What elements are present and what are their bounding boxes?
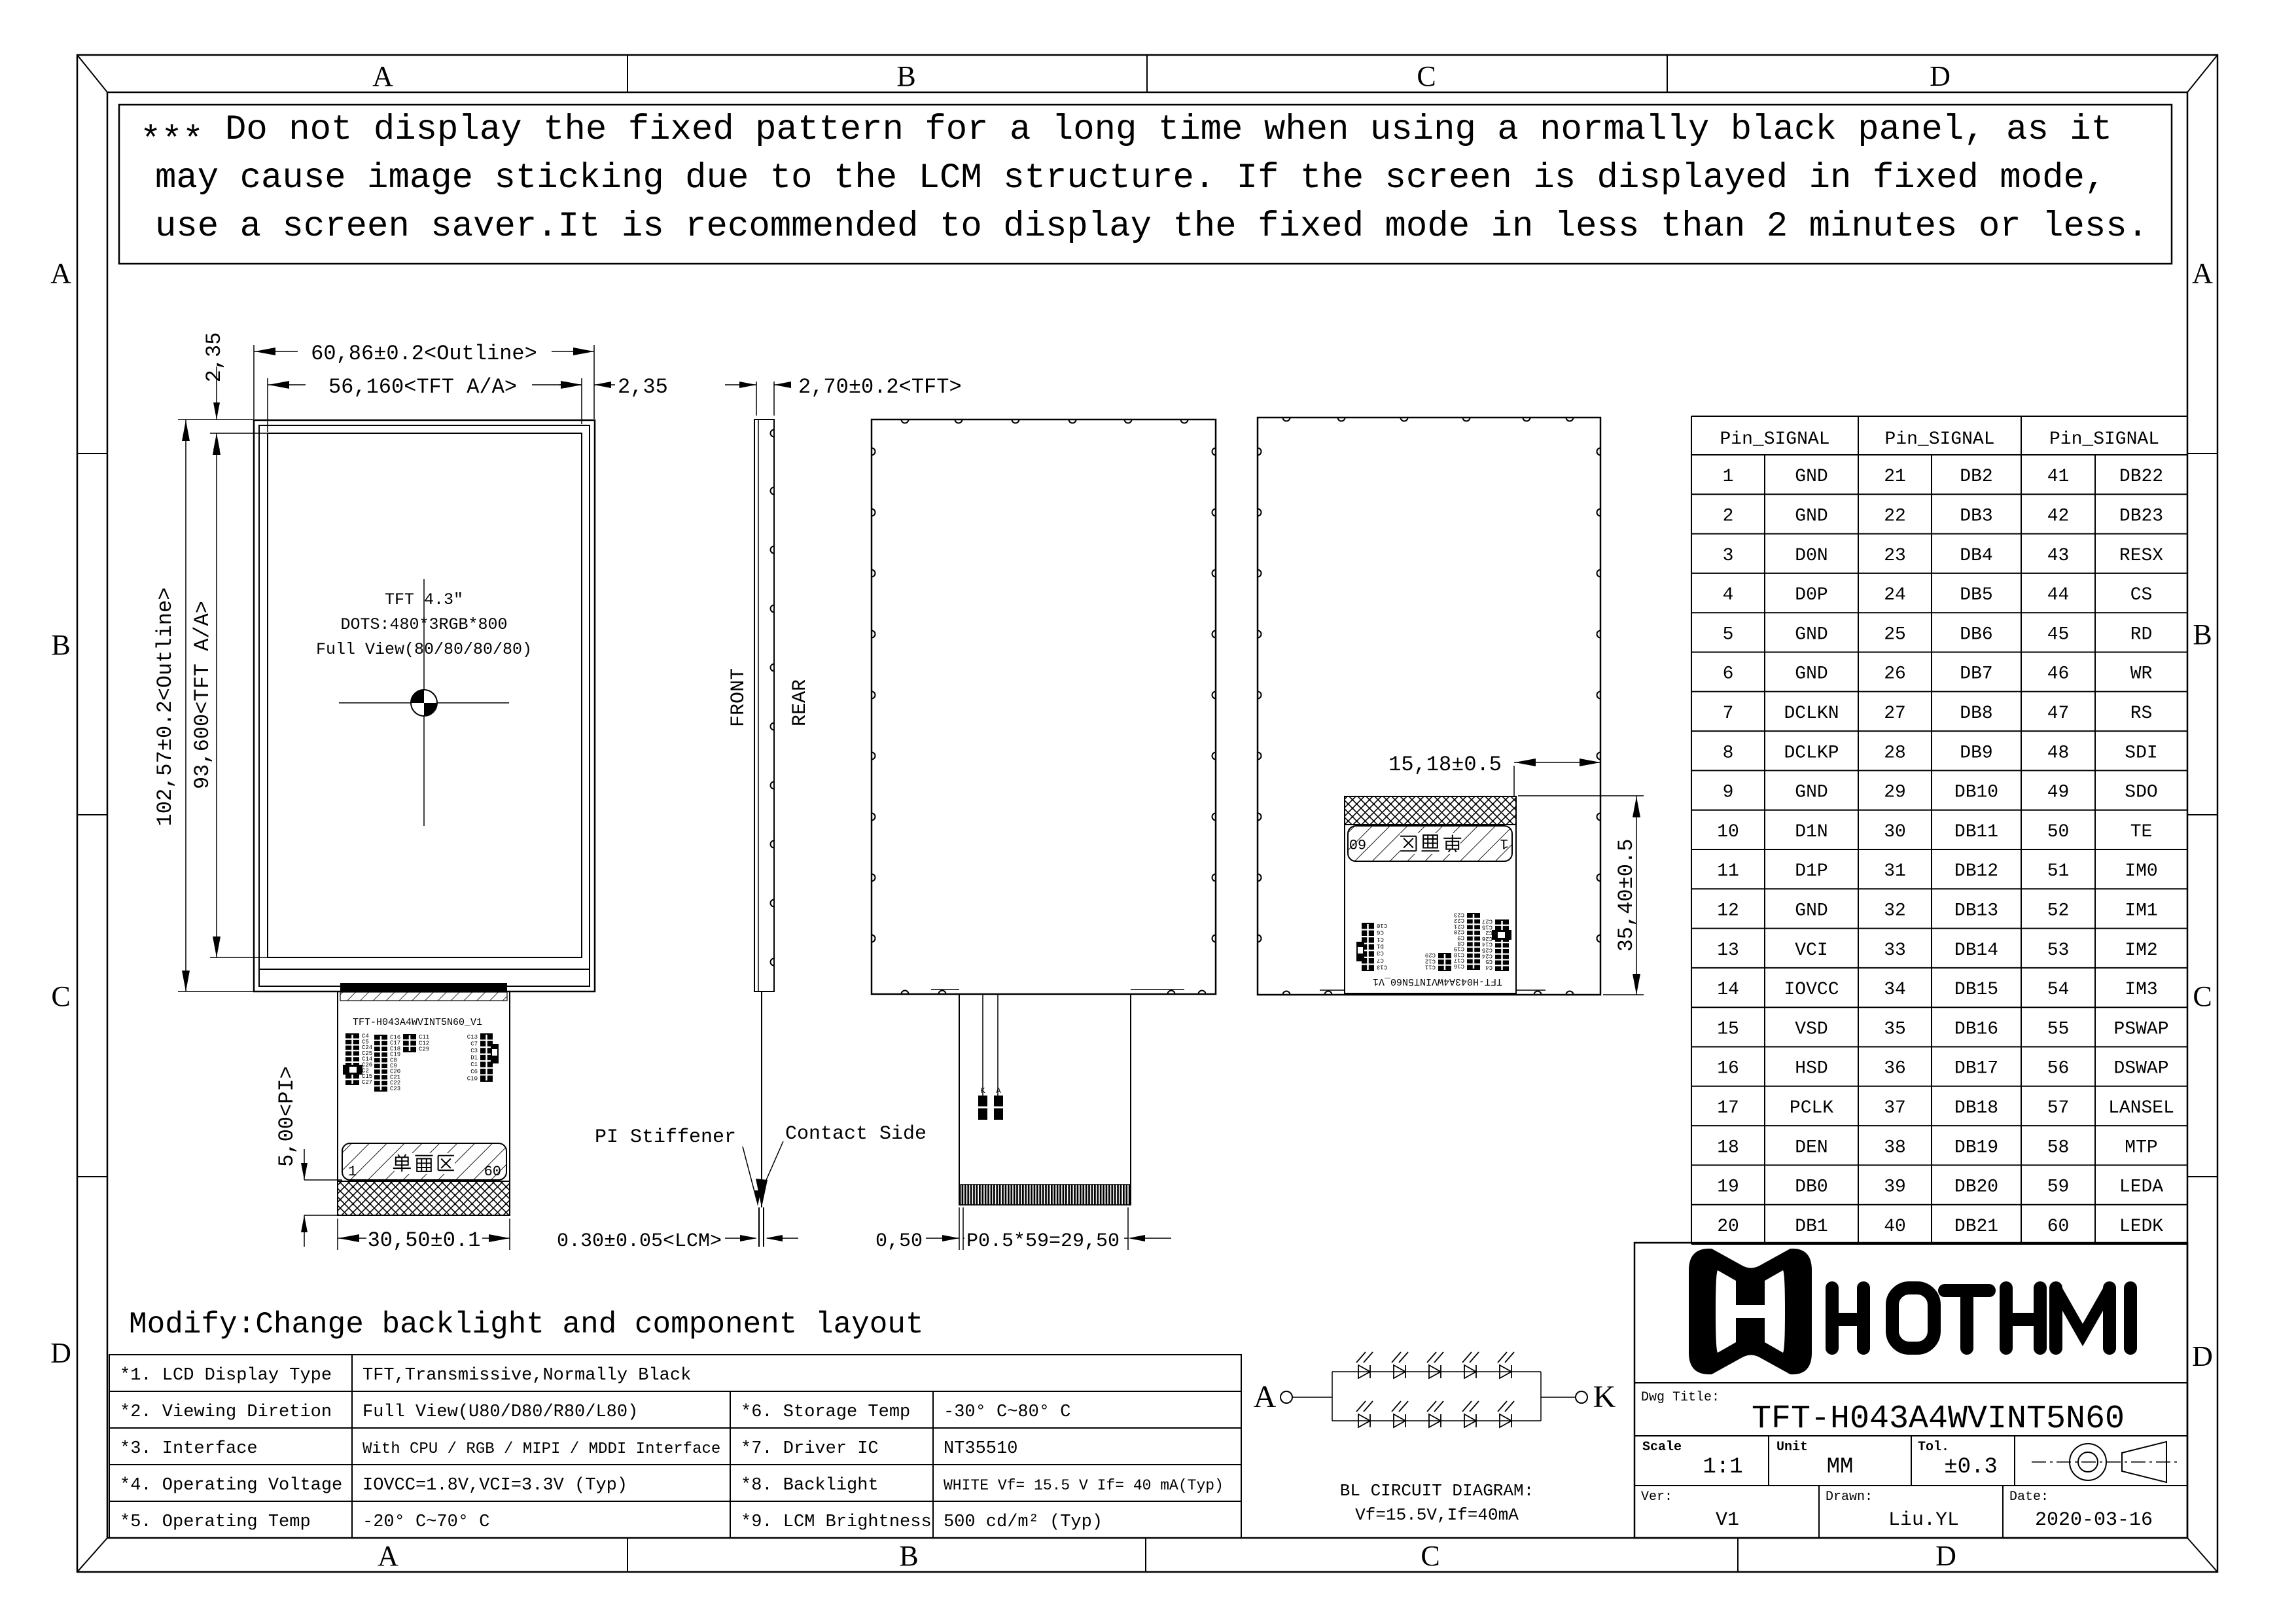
svg-text:Modify:Change backlight and co: Modify:Change backlight and component la… <box>129 1308 924 1342</box>
svg-text:D1P: D1P <box>1795 861 1828 882</box>
svg-text:39: 39 <box>1884 1177 1906 1198</box>
svg-text:C7: C7 <box>1377 957 1384 963</box>
svg-text:Pin_SIGNAL: Pin_SIGNAL <box>2049 429 2159 450</box>
svg-text:P0.5*59=29,50: P0.5*59=29,50 <box>966 1230 1120 1253</box>
svg-text:18: 18 <box>1717 1137 1739 1158</box>
svg-text:44: 44 <box>2047 585 2070 605</box>
svg-text:23: 23 <box>1884 546 1906 566</box>
svg-text:DB23: DB23 <box>2119 506 2163 526</box>
svg-text:A: A <box>996 1086 1001 1096</box>
svg-text:IM3: IM3 <box>2125 980 2157 1000</box>
svg-text:TFT-H043A4WVINT5N60_V1: TFT-H043A4WVINT5N60_V1 <box>1373 976 1502 987</box>
svg-text:DB10: DB10 <box>1954 783 1998 803</box>
svg-text:DEN: DEN <box>1795 1137 1828 1158</box>
svg-text:26: 26 <box>1884 664 1906 685</box>
svg-text:BL CIRCUIT DIAGRAM:: BL CIRCUIT DIAGRAM: <box>1340 1481 1534 1501</box>
svg-text:16: 16 <box>1717 1059 1739 1079</box>
svg-text:DB0: DB0 <box>1795 1177 1828 1198</box>
svg-text:1: 1 <box>348 1164 357 1180</box>
svg-text:C1: C1 <box>470 1061 478 1068</box>
svg-text:19: 19 <box>1717 1177 1739 1198</box>
svg-text:DB2: DB2 <box>1960 467 1992 487</box>
svg-text:VSD: VSD <box>1795 1019 1828 1039</box>
svg-text:49: 49 <box>2047 783 2070 803</box>
svg-text:DB7: DB7 <box>1960 664 1992 685</box>
svg-text:B: B <box>2193 618 2212 651</box>
svg-text:B: B <box>899 1540 918 1572</box>
svg-text:LEDA: LEDA <box>2119 1177 2163 1198</box>
svg-text:12: 12 <box>1717 901 1739 921</box>
svg-text:TFT-H043A4WVINT5N60_V1: TFT-H043A4WVINT5N60_V1 <box>353 1017 482 1028</box>
svg-text:28: 28 <box>1884 743 1906 763</box>
svg-text:56: 56 <box>2047 1059 2070 1079</box>
svg-text:*8. Backlight: *8. Backlight <box>741 1476 879 1495</box>
svg-text:15: 15 <box>1717 1019 1739 1039</box>
svg-text:Unit: Unit <box>1776 1440 1808 1455</box>
svg-text:Ver:: Ver: <box>1641 1489 1672 1505</box>
svg-text:DB17: DB17 <box>1954 1059 1998 1079</box>
svg-text:DB3: DB3 <box>1960 506 1992 526</box>
svg-text:A: A <box>50 257 71 289</box>
svg-text:DB19: DB19 <box>1954 1137 1998 1158</box>
svg-text:21: 21 <box>1884 467 1906 487</box>
svg-text:IM0: IM0 <box>2125 861 2157 882</box>
svg-text:Liu.YL: Liu.YL <box>1888 1509 1959 1531</box>
svg-text:6: 6 <box>1723 664 1734 685</box>
svg-text:B: B <box>896 60 915 92</box>
svg-text:D1: D1 <box>470 1055 478 1061</box>
svg-text:Full View(U80/D80/R80/L80): Full View(U80/D80/R80/L80) <box>362 1402 638 1422</box>
svg-text:C: C <box>2193 980 2212 1012</box>
svg-text:WR: WR <box>2130 664 2153 685</box>
svg-text:IOVCC=1.8V,VCI=3.3V (Typ): IOVCC=1.8V,VCI=3.3V (Typ) <box>362 1476 627 1495</box>
svg-text:Tol.: Tol. <box>1918 1440 1949 1455</box>
svg-text:RS: RS <box>2130 704 2153 724</box>
svg-text:Drawn:: Drawn: <box>1826 1489 1873 1505</box>
svg-text:With CPU / RGB / MIPI / MDDI I: With CPU / RGB / MIPI / MDDI Interface <box>362 1440 720 1458</box>
svg-text:GND: GND <box>1795 624 1828 645</box>
svg-text:C27: C27 <box>362 1079 372 1086</box>
svg-text:PSWAP: PSWAP <box>2113 1019 2168 1039</box>
svg-text:DB12: DB12 <box>1954 861 1998 882</box>
svg-text:*4. Operating Voltage: *4. Operating Voltage <box>120 1476 342 1495</box>
svg-text:±0.3: ±0.3 <box>1944 1455 1998 1480</box>
svg-text:29: 29 <box>1884 783 1906 803</box>
svg-text:C: C <box>1421 1540 1439 1572</box>
svg-text:4: 4 <box>1723 585 1734 605</box>
svg-text:*6. Storage Temp: *6. Storage Temp <box>741 1402 910 1422</box>
svg-text:DB6: DB6 <box>1960 624 1992 645</box>
svg-text:59: 59 <box>2047 1177 2070 1198</box>
svg-text:MTP: MTP <box>2125 1137 2157 1158</box>
svg-text:GND: GND <box>1795 664 1828 685</box>
svg-text:30,50±0.1: 30,50±0.1 <box>368 1228 481 1253</box>
svg-text:Pin_SIGNAL: Pin_SIGNAL <box>1884 429 1994 450</box>
svg-text:DB1: DB1 <box>1795 1217 1828 1237</box>
svg-text:TFT-H043A4WVINT5N60: TFT-H043A4WVINT5N60 <box>1752 1400 2125 1438</box>
svg-text:30: 30 <box>1884 822 1906 842</box>
svg-text:GND: GND <box>1795 467 1828 487</box>
svg-text:2,70±0.2<TFT>: 2,70±0.2<TFT> <box>798 375 962 399</box>
svg-text:93,600<TFT A/A>: 93,600<TFT A/A> <box>190 601 215 789</box>
svg-text:LEDK: LEDK <box>2119 1217 2163 1237</box>
svg-text:58: 58 <box>2047 1137 2070 1158</box>
svg-text:17: 17 <box>1717 1098 1739 1118</box>
svg-text:may cause image sticking due t: may cause image sticking due to the LCM … <box>155 158 2106 198</box>
svg-text:DB15: DB15 <box>1954 980 1998 1000</box>
svg-text:D1N: D1N <box>1795 822 1828 842</box>
svg-text:500 cd/m² (Typ): 500 cd/m² (Typ) <box>944 1512 1103 1532</box>
svg-text:Pin_SIGNAL: Pin_SIGNAL <box>1720 429 1829 450</box>
svg-text:Dwg Title:: Dwg Title: <box>1641 1390 1720 1405</box>
svg-text:5: 5 <box>1723 624 1734 645</box>
svg-text:DCLKN: DCLKN <box>1784 704 1839 724</box>
svg-text:D0N: D0N <box>1795 546 1828 566</box>
svg-text:1:1: 1:1 <box>1703 1455 1742 1480</box>
svg-text:GND: GND <box>1795 783 1828 803</box>
svg-text:45: 45 <box>2047 624 2070 645</box>
svg-text:C27: C27 <box>1482 918 1492 925</box>
svg-text:11: 11 <box>1717 861 1739 882</box>
svg-text:A: A <box>372 60 393 92</box>
svg-text:41: 41 <box>2047 467 2070 487</box>
svg-text:10: 10 <box>1717 822 1739 842</box>
svg-text:D: D <box>50 1337 71 1369</box>
svg-text:DB16: DB16 <box>1954 1019 1998 1039</box>
svg-text:REAR: REAR <box>789 679 811 726</box>
svg-text:IOVCC: IOVCC <box>1784 980 1839 1000</box>
svg-text:K: K <box>980 1086 985 1096</box>
svg-text:32: 32 <box>1884 901 1906 921</box>
svg-text:NT35510: NT35510 <box>944 1439 1017 1459</box>
svg-text:use a screen saver.It is recom: use a screen saver.It is recommended to … <box>155 207 2148 247</box>
svg-text:24: 24 <box>1884 585 1906 605</box>
svg-text:PCLK: PCLK <box>1790 1098 1833 1118</box>
svg-text:C: C <box>51 980 70 1012</box>
svg-text:2,35: 2,35 <box>618 375 668 399</box>
svg-text:*9. LCM Brightness: *9. LCM Brightness <box>741 1512 932 1532</box>
svg-text:B: B <box>51 629 70 661</box>
svg-text:FRONT: FRONT <box>728 668 750 727</box>
svg-text:60: 60 <box>2047 1217 2070 1237</box>
svg-text:2: 2 <box>1723 506 1734 526</box>
svg-text:C: C <box>1417 60 1436 92</box>
svg-text:52: 52 <box>2047 901 2070 921</box>
svg-text:DB5: DB5 <box>1960 585 1992 605</box>
svg-text:RESX: RESX <box>2119 546 2163 566</box>
svg-text:1: 1 <box>1500 835 1508 851</box>
svg-text:A: A <box>1254 1380 1277 1414</box>
svg-text:SDO: SDO <box>2125 783 2157 803</box>
svg-text:CS: CS <box>2130 585 2153 605</box>
svg-text:Vf=15.5V,If=40mA: Vf=15.5V,If=40mA <box>1355 1505 1519 1525</box>
svg-text:25: 25 <box>1884 624 1906 645</box>
svg-text:*3. Interface: *3. Interface <box>120 1439 258 1459</box>
svg-text:C3: C3 <box>470 1048 478 1054</box>
svg-text:***: *** <box>140 121 203 161</box>
svg-text:C10: C10 <box>467 1075 478 1082</box>
svg-text:C10: C10 <box>1377 922 1387 929</box>
svg-text:Date:: Date: <box>2009 1489 2049 1505</box>
svg-text:3: 3 <box>1723 546 1734 566</box>
svg-text:A: A <box>2192 257 2213 289</box>
svg-text:LANSEL: LANSEL <box>2108 1098 2174 1118</box>
svg-text:D1: D1 <box>1377 943 1384 950</box>
svg-text:20: 20 <box>1717 1217 1739 1237</box>
svg-text:DCLKP: DCLKP <box>1784 743 1839 763</box>
svg-text:GND: GND <box>1795 901 1828 921</box>
svg-text:13: 13 <box>1717 940 1739 961</box>
svg-text:56,160<TFT A/A>: 56,160<TFT A/A> <box>328 375 517 399</box>
svg-text:VCI: VCI <box>1795 940 1828 961</box>
svg-text:C7: C7 <box>470 1041 478 1048</box>
svg-text:22: 22 <box>1884 506 1906 526</box>
svg-text:42: 42 <box>2047 506 2070 526</box>
svg-text:A: A <box>378 1540 398 1572</box>
svg-text:K: K <box>1593 1380 1616 1414</box>
svg-text:0,50: 0,50 <box>875 1230 923 1253</box>
svg-text:C29: C29 <box>1425 952 1436 958</box>
svg-text:2020-03-16: 2020-03-16 <box>2035 1509 2153 1531</box>
svg-text:9: 9 <box>1723 783 1734 803</box>
svg-text:37: 37 <box>1884 1098 1906 1118</box>
svg-text:40: 40 <box>1884 1217 1906 1237</box>
svg-text:C23: C23 <box>1454 912 1464 918</box>
svg-text:SDI: SDI <box>2125 743 2157 763</box>
svg-text:7: 7 <box>1723 704 1734 724</box>
svg-text:50: 50 <box>2047 822 2070 842</box>
svg-text:V1: V1 <box>1716 1509 1739 1531</box>
svg-text:31: 31 <box>1884 861 1906 882</box>
svg-text:DB18: DB18 <box>1954 1098 1998 1118</box>
svg-text:DB11: DB11 <box>1954 822 1998 842</box>
svg-text:Scale: Scale <box>1642 1440 1682 1455</box>
svg-text:C3: C3 <box>1377 950 1384 956</box>
svg-text:TFT,Transmissive,Normally Blac: TFT,Transmissive,Normally Black <box>362 1366 691 1385</box>
svg-text:47: 47 <box>2047 704 2070 724</box>
svg-text:15,18±0.5: 15,18±0.5 <box>1388 753 1502 777</box>
svg-text:D: D <box>2192 1340 2213 1372</box>
svg-text:46: 46 <box>2047 664 2070 685</box>
svg-text:C6: C6 <box>1377 929 1384 936</box>
svg-text:35,40±0.5: 35,40±0.5 <box>1614 839 1638 952</box>
svg-text:C1: C1 <box>1377 936 1384 942</box>
svg-text:WHITE Vf= 15.5 V If= 40 mA(Typ: WHITE Vf= 15.5 V If= 40 mA(Typ) <box>944 1477 1224 1494</box>
svg-text:DSWAP: DSWAP <box>2113 1059 2168 1079</box>
svg-text:2,35: 2,35 <box>202 332 226 383</box>
svg-text:60: 60 <box>1349 835 1366 851</box>
svg-text:*7. Driver IC: *7. Driver IC <box>741 1439 879 1459</box>
svg-text:DB14: DB14 <box>1954 940 1998 961</box>
svg-text:HSD: HSD <box>1795 1059 1828 1079</box>
svg-text:DB20: DB20 <box>1954 1177 1998 1198</box>
svg-text:60,86±0.2<Outline>: 60,86±0.2<Outline> <box>311 342 537 366</box>
svg-text:53: 53 <box>2047 940 2070 961</box>
svg-text:TE: TE <box>2130 822 2153 842</box>
svg-text:-20° C~70° C: -20° C~70° C <box>362 1512 489 1532</box>
svg-text:IM1: IM1 <box>2125 901 2157 921</box>
svg-text:0.30±0.05<LCM>: 0.30±0.05<LCM> <box>557 1230 722 1253</box>
svg-text:D: D <box>1935 1540 1956 1572</box>
svg-text:*2. Viewing Diretion: *2. Viewing Diretion <box>120 1402 332 1422</box>
svg-text:60: 60 <box>484 1164 501 1180</box>
svg-text:DB21: DB21 <box>1954 1217 1998 1237</box>
svg-text:8: 8 <box>1723 743 1734 763</box>
svg-text:DB9: DB9 <box>1960 743 1992 763</box>
svg-text:38: 38 <box>1884 1137 1906 1158</box>
svg-text:51: 51 <box>2047 861 2070 882</box>
svg-text:DB4: DB4 <box>1960 546 1992 566</box>
svg-text:33: 33 <box>1884 940 1906 961</box>
svg-text:14: 14 <box>1717 980 1739 1000</box>
svg-text:D0P: D0P <box>1795 585 1828 605</box>
svg-text:Do not display the fixed patte: Do not display the fixed pattern for a l… <box>225 110 2112 150</box>
svg-text:102,57±0.2<Outline>: 102,57±0.2<Outline> <box>153 588 177 827</box>
svg-text:36: 36 <box>1884 1059 1906 1079</box>
svg-text:-30° C~80° C: -30° C~80° C <box>944 1402 1070 1422</box>
svg-text:54: 54 <box>2047 980 2070 1000</box>
svg-text:43: 43 <box>2047 546 2070 566</box>
svg-text:RD: RD <box>2130 624 2153 645</box>
svg-text:C13: C13 <box>467 1034 478 1041</box>
svg-text:35: 35 <box>1884 1019 1906 1039</box>
svg-text:IM2: IM2 <box>2125 940 2157 961</box>
svg-text:PI Stiffener: PI Stiffener <box>595 1126 736 1149</box>
svg-text:1: 1 <box>1723 467 1734 487</box>
svg-text:*5. Operating Temp: *5. Operating Temp <box>120 1512 311 1532</box>
svg-text:GND: GND <box>1795 506 1828 526</box>
svg-text:34: 34 <box>1884 980 1906 1000</box>
svg-text:57: 57 <box>2047 1098 2070 1118</box>
svg-text:Contact Side: Contact Side <box>785 1123 927 1145</box>
svg-text:C6: C6 <box>470 1069 478 1075</box>
svg-text:48: 48 <box>2047 743 2070 763</box>
svg-text:D: D <box>1930 60 1951 92</box>
svg-text:*1. LCD Display Type: *1. LCD Display Type <box>120 1366 332 1385</box>
svg-text:55: 55 <box>2047 1019 2070 1039</box>
svg-text:27: 27 <box>1884 704 1906 724</box>
svg-text:MM: MM <box>1827 1455 1854 1480</box>
svg-text:5,00<PI>: 5,00<PI> <box>275 1066 299 1167</box>
svg-text:C23: C23 <box>390 1086 400 1092</box>
svg-text:DB8: DB8 <box>1960 704 1992 724</box>
svg-text:C13: C13 <box>1377 963 1387 970</box>
svg-text:C29: C29 <box>419 1046 429 1053</box>
svg-text:DB13: DB13 <box>1954 901 1998 921</box>
svg-text:DB22: DB22 <box>2119 467 2163 487</box>
